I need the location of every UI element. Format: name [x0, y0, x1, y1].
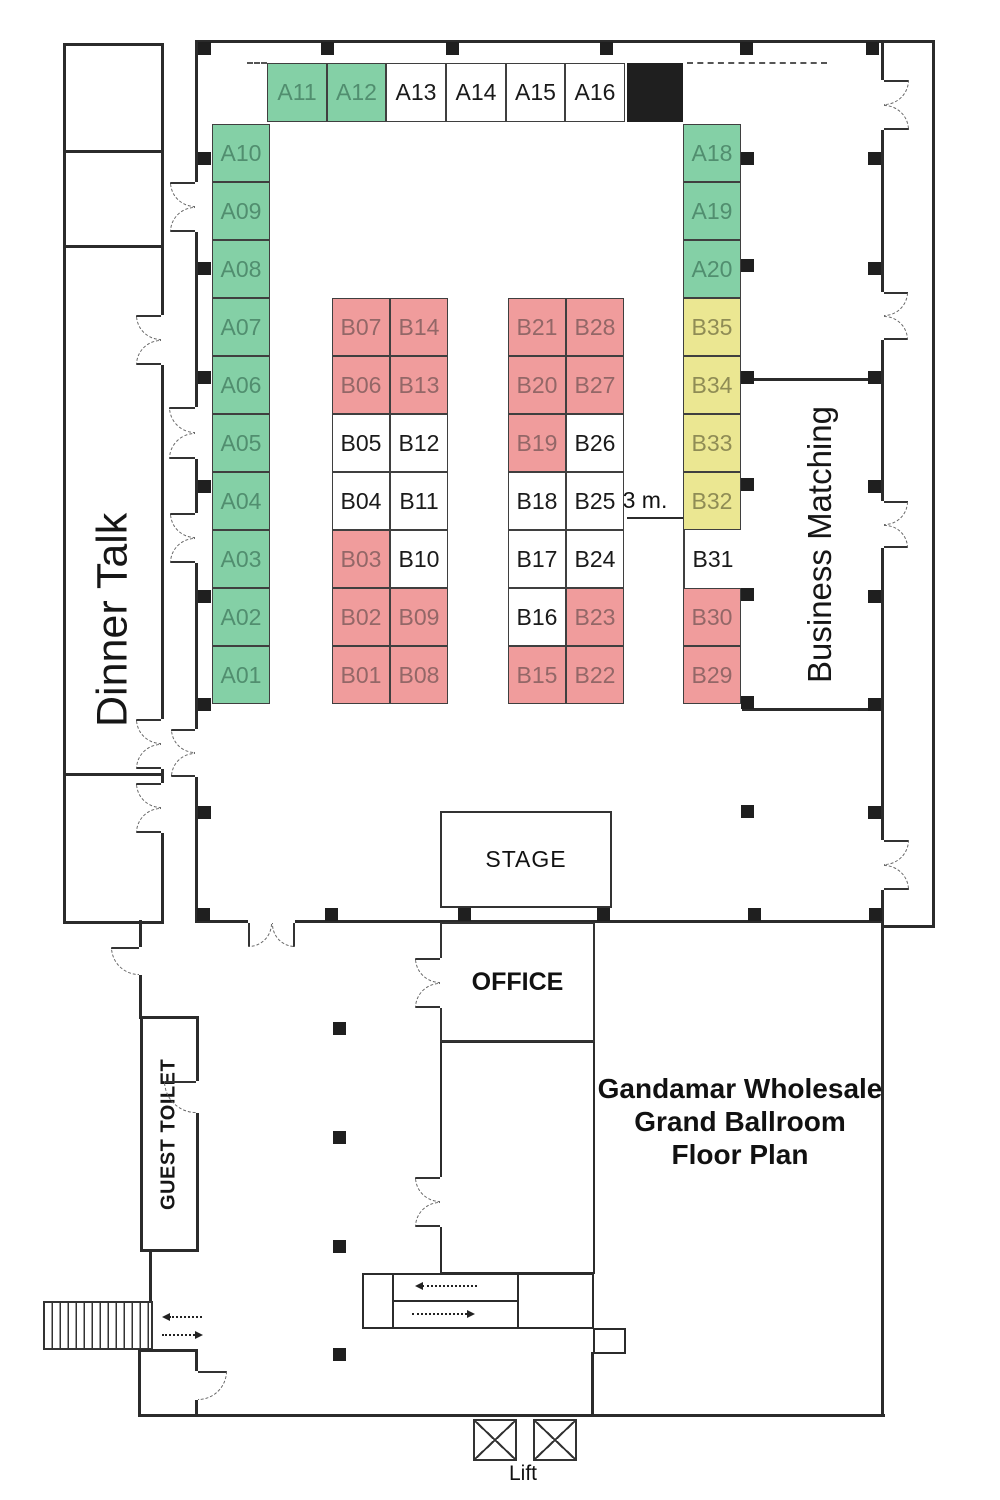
- lobby-left-wall: [149, 1249, 152, 1303]
- booth-A07: A07: [212, 298, 270, 356]
- pillar: [868, 698, 881, 711]
- booth-B09: B09: [390, 588, 448, 646]
- direction-arrow: [412, 1313, 467, 1315]
- title-line: Gandamar Wholesale: [585, 1072, 895, 1105]
- door-swing-arc: [884, 316, 908, 340]
- booth-A15: A15: [506, 63, 565, 122]
- pillar: [741, 588, 754, 601]
- corridor-bottom-wall: [881, 925, 935, 928]
- booth-B26: B26: [566, 414, 624, 472]
- door-swing-arc: [169, 407, 195, 433]
- door-gap: [196, 1081, 199, 1113]
- door-swing-arc: [169, 433, 195, 459]
- door-swing-arc: [198, 1371, 227, 1400]
- pillar: [198, 590, 211, 603]
- booth-A20: A20: [683, 240, 741, 298]
- booth-B31: B31: [683, 530, 741, 588]
- door-gap: [195, 407, 198, 459]
- door-swing-arc: [170, 513, 195, 538]
- pillar: [597, 908, 610, 921]
- operable-wall-dashed: [687, 62, 827, 64]
- door-swing-arc: [248, 923, 272, 947]
- door-swing-arc: [884, 501, 908, 525]
- door-swing-arc: [415, 1177, 440, 1202]
- lift-shaft: [473, 1419, 517, 1461]
- pillar: [868, 590, 881, 603]
- pillar: [741, 805, 754, 818]
- office-storage-room: [440, 1041, 595, 1274]
- stairs: [43, 1301, 153, 1350]
- booth-B18: B18: [508, 472, 566, 530]
- booth-B03: B03: [332, 530, 390, 588]
- aisle-dimension-line: [627, 517, 683, 519]
- door-swing-arc: [884, 525, 908, 549]
- door-swing-arc: [171, 753, 195, 777]
- booth-B32: B32: [683, 472, 741, 530]
- pillar: [741, 259, 754, 272]
- direction-arrow: [162, 1334, 195, 1336]
- pillar: [740, 42, 753, 55]
- pillar: [868, 262, 881, 275]
- door-swing-arc: [415, 1202, 440, 1227]
- arrowhead: [415, 1282, 423, 1290]
- booth-B19: B19: [508, 414, 566, 472]
- door-swing-arc: [415, 983, 440, 1008]
- door-swing-arc: [884, 105, 909, 130]
- solid-block: [627, 63, 683, 122]
- pillar: [198, 480, 211, 493]
- pillar: [325, 908, 338, 921]
- door-gap: [440, 1177, 443, 1227]
- direction-arrow: [422, 1285, 477, 1287]
- booth-A11: A11: [267, 63, 327, 122]
- booth-A14: A14: [446, 63, 506, 122]
- booth-B05: B05: [332, 414, 390, 472]
- booth-B34: B34: [683, 356, 741, 414]
- door-gap: [440, 958, 443, 1008]
- door-swing-arc: [171, 729, 195, 753]
- lower-divider-wall: [591, 1352, 594, 1417]
- wall-notch: [593, 1328, 626, 1354]
- booth-B30: B30: [683, 588, 741, 646]
- office-label: OFFICE: [472, 968, 564, 997]
- booth-A05: A05: [212, 414, 270, 472]
- wing-divider: [63, 245, 164, 248]
- booth-B28: B28: [566, 298, 624, 356]
- pillar: [198, 262, 211, 275]
- pillar: [600, 42, 613, 55]
- booth-A03: A03: [212, 530, 270, 588]
- booth-B27: B27: [566, 356, 624, 414]
- business-matching-top-wall: [742, 378, 883, 381]
- pillar: [741, 371, 754, 384]
- title-line: Floor Plan: [585, 1138, 895, 1171]
- booth-A18: A18: [683, 124, 741, 182]
- title-line: Grand Ballroom: [585, 1105, 895, 1138]
- booth-B10: B10: [390, 530, 448, 588]
- stair-lobby-room: [138, 1349, 198, 1417]
- booth-A06: A06: [212, 356, 270, 414]
- booth-B04: B04: [332, 472, 390, 530]
- booth-B02: B02: [332, 588, 390, 646]
- pillar: [333, 1022, 346, 1035]
- pillar: [197, 908, 210, 921]
- door-swing-arc: [884, 80, 909, 105]
- lift-shaft: [533, 1419, 577, 1461]
- door-swing-arc: [111, 947, 139, 975]
- pillar: [741, 478, 754, 491]
- booth-B16: B16: [508, 588, 566, 646]
- pillar: [198, 371, 211, 384]
- guest-toilet-label: GUEST TOILET: [142, 1020, 196, 1248]
- booth-A13: A13: [386, 63, 446, 122]
- booth-B21: B21: [508, 298, 566, 356]
- pillar: [198, 806, 211, 819]
- booth-B01: B01: [332, 646, 390, 704]
- arrowhead: [162, 1313, 170, 1321]
- booth-A09: A09: [212, 182, 270, 240]
- corridor-outer-wall: [932, 40, 935, 928]
- booth-B20: B20: [508, 356, 566, 414]
- pillar: [198, 152, 211, 165]
- door-gap: [161, 719, 164, 769]
- booth-B11: B11: [390, 472, 448, 530]
- pillar: [868, 371, 881, 384]
- direction-arrow: [169, 1316, 202, 1318]
- door-swing-arc: [170, 182, 195, 207]
- booth-A12: A12: [327, 63, 386, 122]
- booth-B07: B07: [332, 298, 390, 356]
- door-swing-arc: [884, 292, 908, 316]
- pillar: [198, 42, 211, 55]
- stage-area: STAGE: [440, 811, 612, 908]
- door-gap: [195, 729, 198, 777]
- door-swing-arc: [272, 923, 296, 947]
- operable-wall-dashed: [247, 62, 267, 64]
- hall-right-wall: [881, 40, 884, 1417]
- pillar: [869, 908, 882, 921]
- office-area: OFFICE: [440, 922, 595, 1042]
- door-swing-arc: [415, 958, 440, 983]
- pillar: [868, 480, 881, 493]
- booth-B22: B22: [566, 646, 624, 704]
- pillar: [198, 698, 211, 711]
- pillar: [868, 806, 881, 819]
- booth-A19: A19: [683, 182, 741, 240]
- door-gap: [195, 182, 198, 232]
- pillar: [446, 42, 459, 55]
- door-gap: [139, 947, 142, 975]
- door-gap: [161, 315, 164, 365]
- pillar: [333, 1131, 346, 1144]
- pillar: [748, 908, 761, 921]
- booth-B24: B24: [566, 530, 624, 588]
- stage-label: STAGE: [485, 846, 566, 873]
- door-swing-arc: [884, 840, 909, 865]
- business-matching-label: Business Matching: [788, 395, 852, 695]
- pillar: [458, 908, 471, 921]
- pillar: [741, 152, 754, 165]
- pillar: [868, 152, 881, 165]
- booth-A16: A16: [565, 63, 625, 122]
- booth-B14: B14: [390, 298, 448, 356]
- booth-B35: B35: [683, 298, 741, 356]
- booth-B23: B23: [566, 588, 624, 646]
- booth-B17: B17: [508, 530, 566, 588]
- door-gap: [161, 783, 164, 833]
- pillar: [866, 42, 879, 55]
- door-swing-arc: [170, 538, 195, 563]
- pillar: [333, 1348, 346, 1361]
- booth-B06: B06: [332, 356, 390, 414]
- booth-A10: A10: [212, 124, 270, 182]
- pillar: [741, 696, 754, 709]
- arrowhead: [467, 1310, 475, 1318]
- building-bottom-wall: [138, 1414, 885, 1417]
- booth-B15: B15: [508, 646, 566, 704]
- booth-A01: A01: [212, 646, 270, 704]
- business-matching-bottom-wall: [742, 708, 883, 711]
- booth-B29: B29: [683, 646, 741, 704]
- title-block: Gandamar Wholesale Grand Ballroom Floor …: [585, 1072, 895, 1171]
- lift-label: Lift: [475, 1462, 571, 1486]
- booth-B12: B12: [390, 414, 448, 472]
- arrowhead: [195, 1331, 203, 1339]
- booth-B25: B25: [566, 472, 624, 530]
- hall-top-wall: [197, 40, 935, 43]
- booth-A08: A08: [212, 240, 270, 298]
- booth-A04: A04: [212, 472, 270, 530]
- escalator-divider: [392, 1300, 519, 1302]
- pillar: [333, 1240, 346, 1253]
- door-swing-arc: [884, 865, 909, 890]
- door-gap: [195, 513, 198, 563]
- floor-plan: STAGE OFFICE Lift Dinner Talk Business M…: [0, 0, 1000, 1500]
- wing-divider: [63, 150, 164, 153]
- door-swing-arc: [170, 207, 195, 232]
- booth-A02: A02: [212, 588, 270, 646]
- booth-B33: B33: [683, 414, 741, 472]
- booth-B08: B08: [390, 646, 448, 704]
- pillar: [321, 42, 334, 55]
- booth-B13: B13: [390, 356, 448, 414]
